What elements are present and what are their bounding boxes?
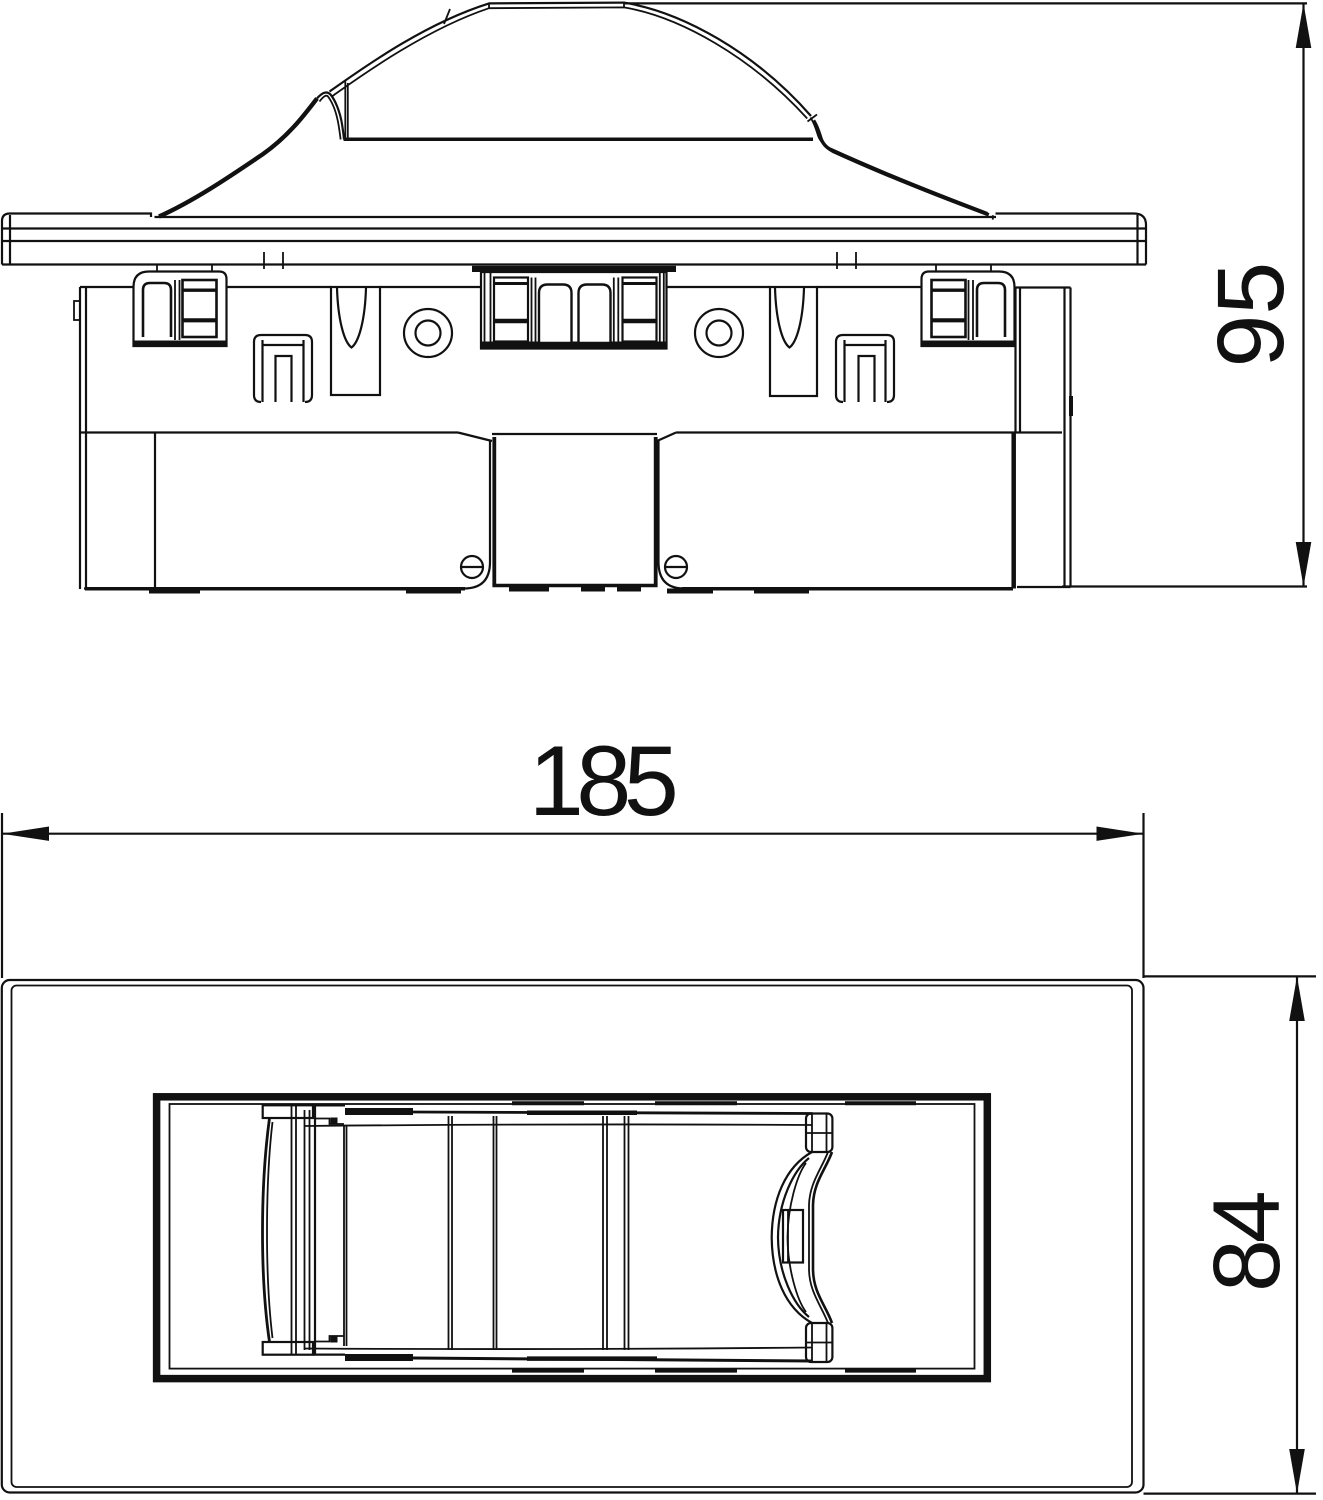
svg-text:95: 95 [1198, 262, 1304, 368]
svg-text:185: 185 [529, 725, 675, 836]
svg-text:84: 84 [1194, 1192, 1300, 1292]
